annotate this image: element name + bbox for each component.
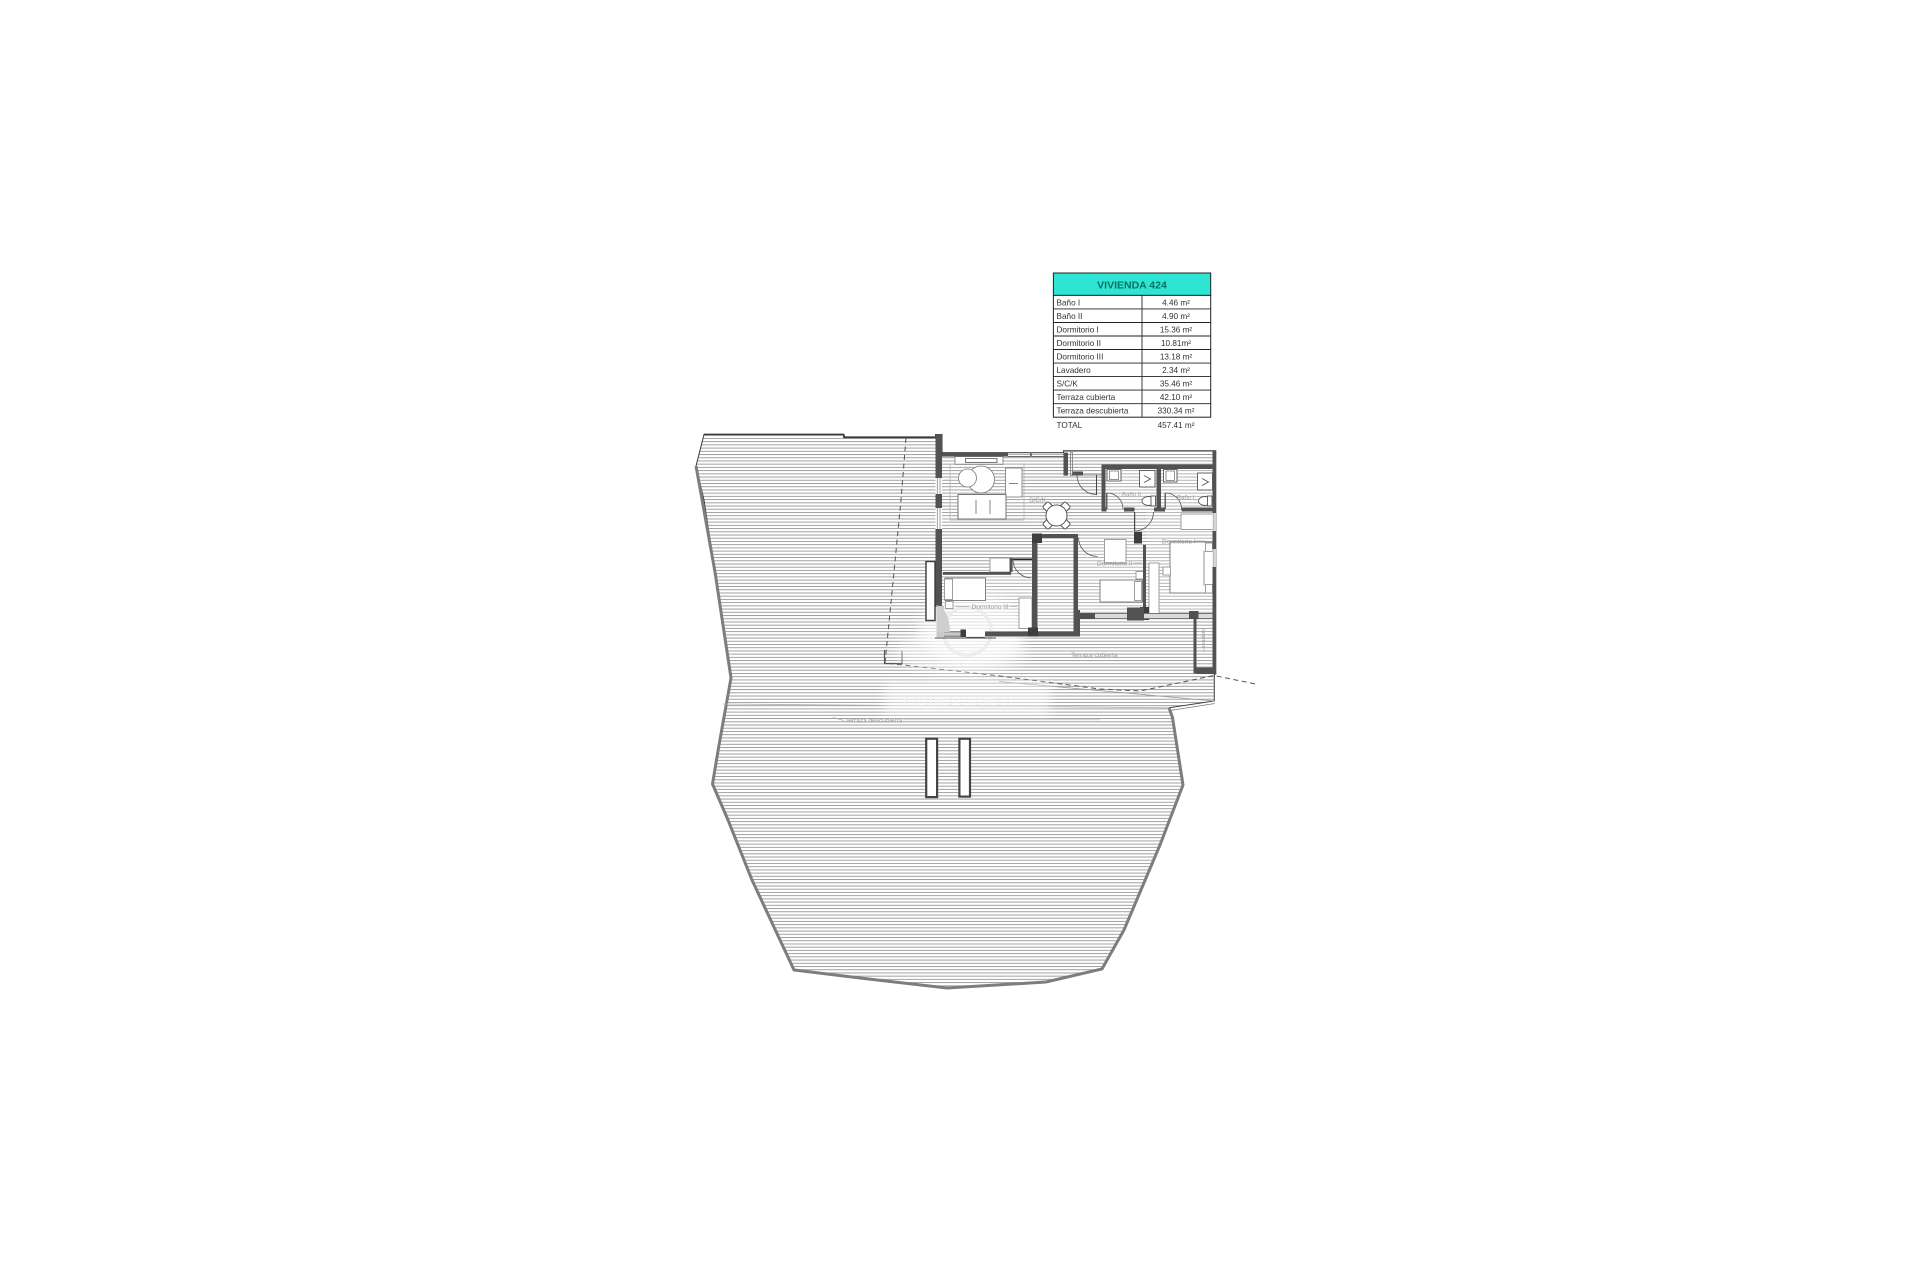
svg-text:10.81m²: 10.81m² <box>1161 339 1191 348</box>
svg-text:15.36 m²: 15.36 m² <box>1160 326 1193 335</box>
svg-text:2.34 m²: 2.34 m² <box>1162 366 1190 375</box>
svg-text:4.46 m²: 4.46 m² <box>1162 299 1190 308</box>
svg-text:Dormitorio I: Dormitorio I <box>1162 539 1196 546</box>
svg-text:Terraza cubierta: Terraza cubierta <box>1071 652 1118 659</box>
svg-text:Baño II: Baño II <box>1122 493 1141 499</box>
svg-text:4.90 m²: 4.90 m² <box>1162 312 1190 321</box>
svg-text:Dormitorio II: Dormitorio II <box>1057 339 1102 348</box>
svg-text:S/C/K: S/C/K <box>1057 380 1079 389</box>
svg-text:13.18 m²: 13.18 m² <box>1160 353 1193 362</box>
svg-text:Lavadero: Lavadero <box>1057 366 1092 375</box>
svg-text:Terraza descubierta: Terraza descubierta <box>1057 407 1129 416</box>
svg-text:VIVIENDA 424: VIVIENDA 424 <box>1097 280 1167 292</box>
svg-text:Baño II: Baño II <box>1057 312 1083 321</box>
svg-text:S/C/K: S/C/K <box>1029 497 1047 504</box>
svg-text:TOTAL: TOTAL <box>1057 421 1083 430</box>
svg-text:Dormitorio III: Dormitorio III <box>972 604 1009 611</box>
svg-text:Terraza descubierta: Terraza descubierta <box>845 718 902 725</box>
svg-text:Dormitorio III: Dormitorio III <box>1057 353 1104 362</box>
svg-text:Terraza cubierta: Terraza cubierta <box>1057 393 1116 402</box>
svg-text:42.10 m²: 42.10 m² <box>1160 393 1193 402</box>
svg-text:330.34 m²: 330.34 m² <box>1158 407 1195 416</box>
svg-text:Lavadero: Lavadero <box>1201 628 1207 652</box>
svg-text:35.46 m²: 35.46 m² <box>1160 380 1193 389</box>
svg-text:457.41 m²: 457.41 m² <box>1158 421 1195 430</box>
svg-text:Dormitorio I: Dormitorio I <box>1057 326 1099 335</box>
svg-text:PROMOCIONES: PROMOCIONES <box>903 696 1014 708</box>
svg-text:Dormitorio II: Dormitorio II <box>1097 561 1133 568</box>
svg-text:Baño I: Baño I <box>1057 299 1081 308</box>
svg-text:Baño I: Baño I <box>1177 496 1195 502</box>
